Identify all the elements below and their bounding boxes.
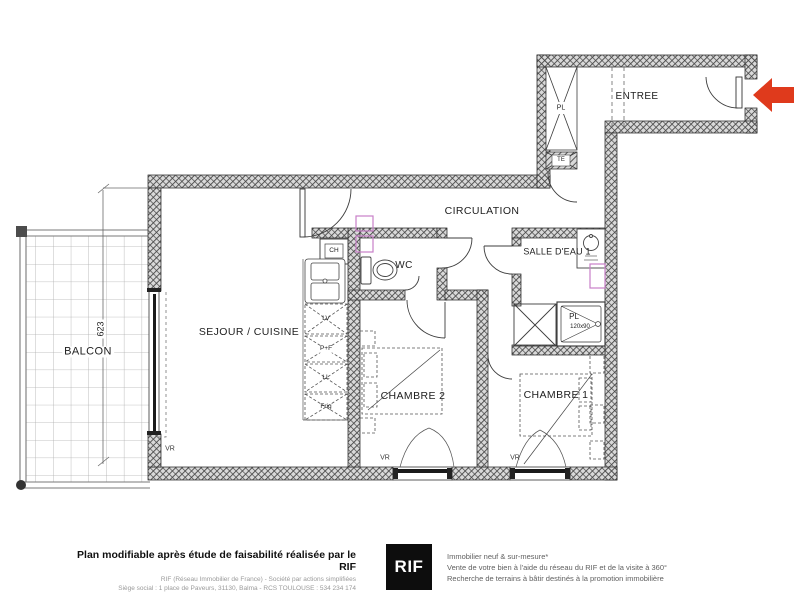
label-te: TE bbox=[557, 157, 565, 163]
room-label-entree: ENTREE bbox=[616, 92, 659, 102]
walls-crosshatch bbox=[148, 55, 757, 480]
label-pl-entree: PL bbox=[557, 105, 566, 112]
entrance-arrow-icon bbox=[753, 78, 794, 112]
footer-address-line: Siège social : 1 place de Paveurs, 31130… bbox=[60, 585, 356, 594]
footer-bold-line: Plan modifiable après étude de faisabili… bbox=[60, 549, 356, 573]
rif-logo-text: RIF bbox=[395, 557, 424, 577]
walls bbox=[148, 55, 757, 480]
room-label-circulation: CIRCULATION bbox=[445, 206, 520, 217]
balcony bbox=[16, 226, 150, 490]
kitchen-fixtures bbox=[303, 239, 348, 420]
bed-chambre1 bbox=[520, 374, 592, 436]
footer-service-line-1: Immobilier neuf & sur-mesure* bbox=[447, 551, 777, 562]
balcony-post bbox=[16, 480, 26, 490]
room-label-chambre2: CHAMBRE 2 bbox=[381, 391, 446, 402]
footer-service-line-3: Recherche de terrains à bâtir destinés à… bbox=[447, 573, 777, 584]
label-ll: LL bbox=[322, 375, 329, 382]
label-douche-size: 120x90 bbox=[570, 324, 590, 330]
entree-closet bbox=[546, 67, 577, 169]
balcony-post bbox=[16, 226, 27, 237]
footer-right-block: Immobilier neuf & sur-mesure* Vente de v… bbox=[447, 551, 777, 584]
floor-plan-page: BALCON SEJOUR / CUISINE CHAMBRE 2 CHAMBR… bbox=[0, 0, 800, 600]
label-pl-douche: PL bbox=[569, 313, 579, 321]
label-vr-chambre1: VR bbox=[510, 455, 520, 462]
label-ch: CH bbox=[329, 248, 338, 255]
room-label-chambre1: CHAMBRE 1 bbox=[524, 390, 589, 401]
label-pf: P+F bbox=[318, 346, 334, 353]
footer-company-line: RIF (Réseau Immobilier de France) - Soci… bbox=[60, 576, 356, 585]
kitchen-sink bbox=[305, 259, 345, 303]
footer-service-line-2: Vente de votre bien à l'aide du réseau d… bbox=[447, 562, 777, 573]
bathroom-closet bbox=[514, 304, 556, 346]
dimension-text: 623 bbox=[97, 319, 106, 338]
label-frig: Frig bbox=[320, 404, 331, 411]
room-label-wc: WC bbox=[395, 261, 412, 271]
label-vr-sejour: VR bbox=[165, 446, 175, 453]
room-label-salle-deau: SALLE D'EAU 1 bbox=[523, 248, 590, 257]
label-lv: LV bbox=[322, 316, 329, 323]
room-label-sejour: SEJOUR / CUISINE bbox=[199, 327, 299, 338]
footer-left-block: Plan modifiable après étude de faisabili… bbox=[60, 549, 356, 593]
label-vr-chambre2: VR bbox=[380, 455, 390, 462]
rif-logo: RIF bbox=[386, 544, 432, 590]
toilet bbox=[361, 257, 397, 284]
room-label-balcon: BALCON bbox=[62, 347, 114, 358]
